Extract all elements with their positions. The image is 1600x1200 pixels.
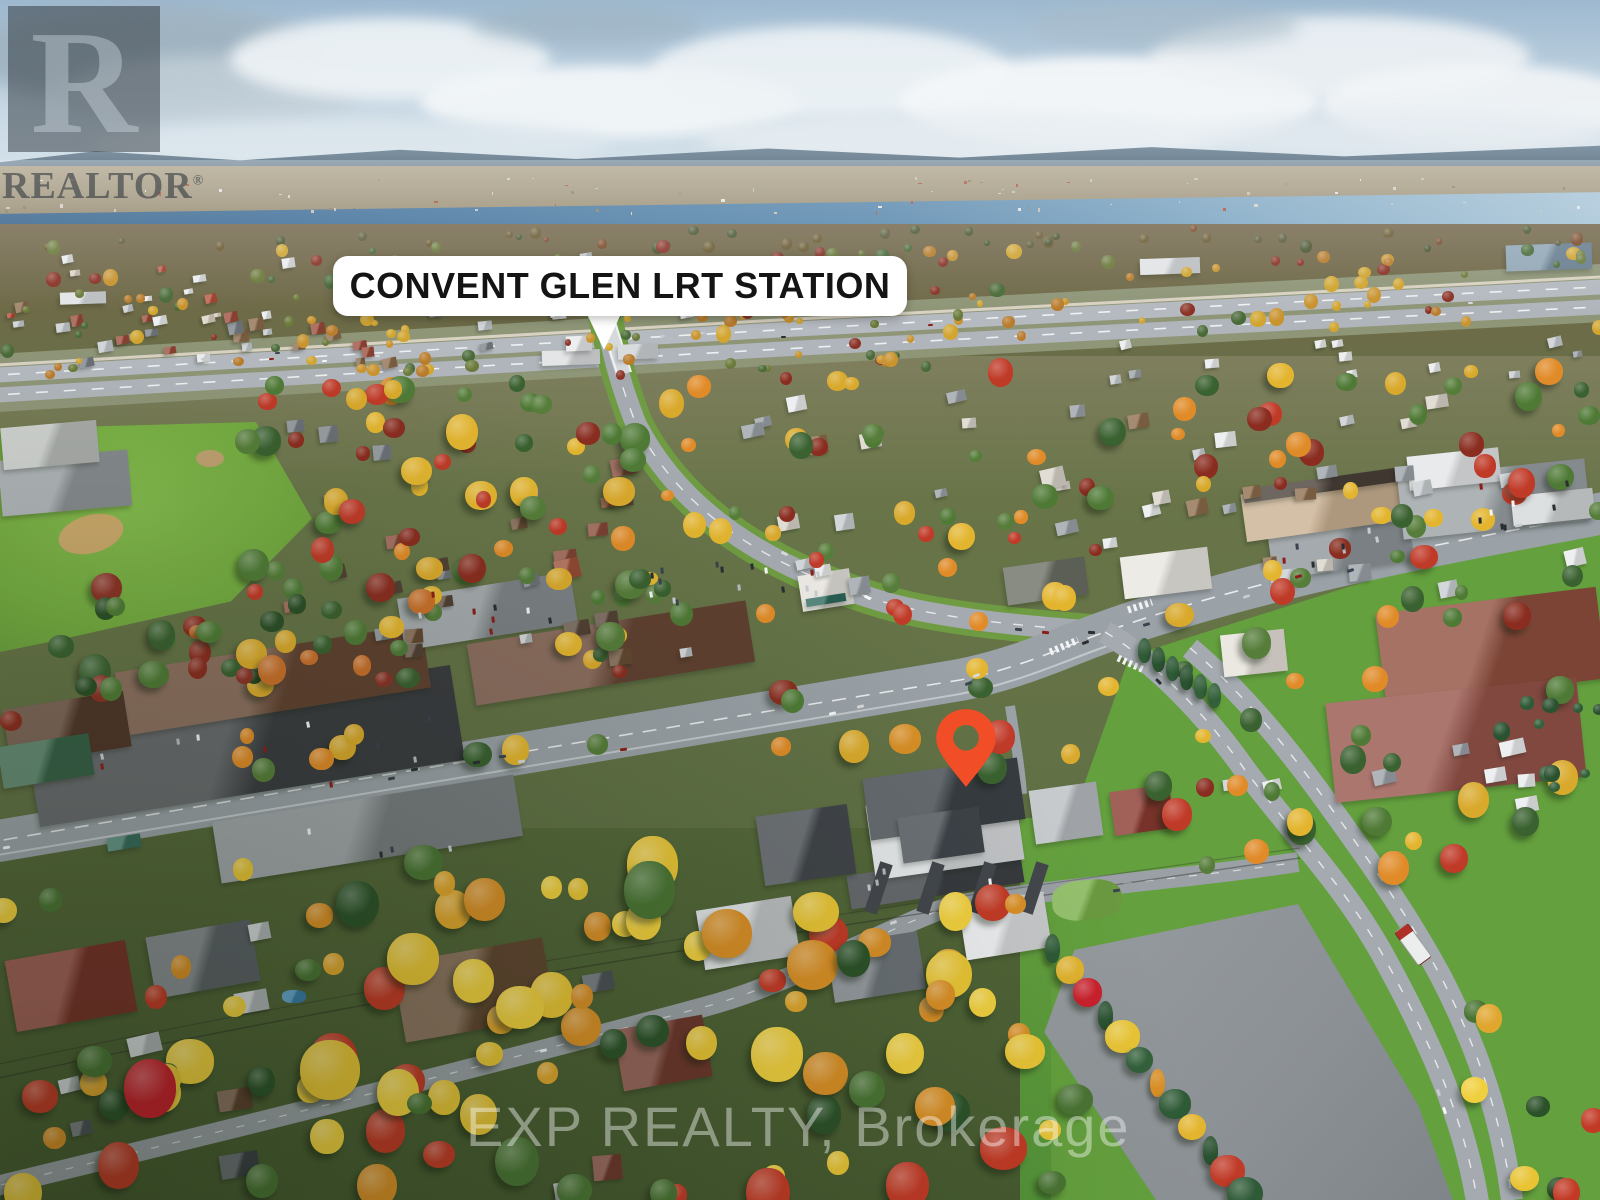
- parked-car: [196, 734, 200, 740]
- parked-car: [764, 568, 768, 574]
- house: [588, 523, 609, 538]
- tree: [1171, 428, 1185, 441]
- house: [478, 320, 493, 331]
- car: [1515, 523, 1522, 527]
- tree: [866, 350, 875, 360]
- distant-building: [353, 208, 356, 210]
- house: [1573, 351, 1583, 358]
- house: [1547, 336, 1563, 349]
- house: [1394, 465, 1415, 482]
- tree: [520, 496, 546, 520]
- tree: [276, 244, 289, 257]
- parked-car: [493, 604, 497, 610]
- tree: [1317, 251, 1329, 263]
- distant-building: [998, 193, 1001, 195]
- distant-building: [1391, 203, 1392, 205]
- tree: [796, 318, 802, 324]
- tree: [1162, 798, 1192, 830]
- tree: [81, 322, 89, 329]
- house: [1425, 393, 1449, 409]
- house: [1316, 465, 1338, 480]
- tree: [145, 985, 167, 1009]
- tree: [921, 361, 931, 372]
- tree: [0, 711, 22, 731]
- house: [1214, 431, 1236, 449]
- realtor-wordmark: REALTOR®: [2, 164, 204, 208]
- distant-building: [219, 189, 221, 192]
- tree: [1424, 509, 1442, 527]
- distant-building: [329, 208, 332, 209]
- tree: [1547, 464, 1574, 491]
- house: [1204, 359, 1218, 369]
- tree: [1371, 507, 1392, 525]
- tree: [1431, 307, 1441, 316]
- tree: [789, 432, 813, 459]
- distant-building: [878, 206, 881, 208]
- house: [1069, 404, 1085, 417]
- tree: [258, 655, 286, 685]
- house: [405, 629, 424, 644]
- distant-building: [532, 178, 533, 180]
- parked-car: [526, 608, 530, 614]
- parked-car: [548, 617, 552, 623]
- tree: [458, 554, 486, 584]
- tree: [1304, 294, 1318, 309]
- tree: [1455, 585, 1469, 601]
- tree: [250, 269, 265, 283]
- tree: [659, 389, 685, 418]
- parked-car: [737, 584, 741, 590]
- tree: [138, 661, 168, 689]
- tree: [969, 612, 987, 632]
- tree: [1367, 287, 1381, 303]
- tree: [1145, 771, 1172, 801]
- house: [1109, 374, 1122, 385]
- house: [158, 265, 167, 273]
- tree: [1231, 311, 1246, 325]
- tree: [541, 876, 562, 899]
- tree: [584, 912, 611, 940]
- parked-car: [867, 884, 871, 890]
- tree: [795, 351, 802, 358]
- distant-building: [596, 209, 600, 211]
- car: [1015, 627, 1022, 631]
- tree: [765, 525, 781, 540]
- tree: [1005, 894, 1026, 914]
- tree: [724, 315, 737, 327]
- car: [473, 760, 480, 764]
- distant-building: [980, 182, 983, 184]
- tree: [100, 677, 123, 701]
- tree: [288, 432, 305, 448]
- tree: [238, 549, 269, 581]
- tree: [1553, 261, 1561, 269]
- tree: [171, 955, 191, 978]
- tree: [603, 477, 635, 506]
- tree: [496, 986, 544, 1029]
- tree: [356, 364, 367, 374]
- house: [1332, 339, 1344, 348]
- parked-car: [650, 573, 654, 579]
- house: [786, 394, 808, 412]
- tree: [989, 283, 1004, 298]
- tree: [1139, 234, 1149, 243]
- tree: [709, 518, 733, 544]
- tree: [309, 748, 333, 770]
- tree: [812, 234, 822, 243]
- tree: [1461, 316, 1472, 327]
- parked-car: [100, 764, 104, 770]
- tree: [366, 1109, 406, 1153]
- tree: [240, 728, 254, 744]
- car: [1442, 1107, 1447, 1115]
- tree: [1442, 291, 1454, 302]
- tree: [1436, 238, 1442, 244]
- tree: [688, 226, 699, 235]
- tree: [681, 438, 696, 452]
- tree: [1526, 1096, 1550, 1117]
- tree: [568, 878, 588, 900]
- tree: [1286, 673, 1303, 689]
- tree: [22, 306, 30, 313]
- tree: [621, 330, 632, 340]
- tree: [284, 316, 294, 327]
- tree: [384, 380, 402, 399]
- parked-car: [1489, 509, 1493, 515]
- tree: [531, 395, 552, 414]
- tree: [620, 448, 646, 472]
- distant-building: [753, 188, 754, 191]
- tree: [403, 367, 413, 377]
- tree: [77, 1046, 112, 1077]
- distant-building: [918, 183, 922, 185]
- tree: [1254, 236, 1262, 243]
- house: [1338, 351, 1351, 361]
- distant-building: [492, 192, 494, 195]
- tree: [1195, 375, 1219, 396]
- car: [890, 920, 898, 925]
- car: [1468, 302, 1473, 304]
- tree: [938, 257, 948, 267]
- tree: [136, 294, 145, 302]
- parked-car: [390, 847, 394, 853]
- tree: [687, 375, 711, 398]
- realtor-logo-letter: R: [31, 9, 138, 157]
- tree: [988, 358, 1013, 387]
- tree: [623, 354, 635, 365]
- tree: [1351, 725, 1372, 746]
- tree: [1358, 267, 1371, 279]
- distant-building: [378, 179, 380, 181]
- tree: [1, 344, 15, 358]
- tree: [1332, 301, 1341, 310]
- parked-car: [306, 721, 310, 728]
- tree: [1173, 397, 1196, 420]
- tree: [502, 735, 529, 765]
- parked-car: [648, 592, 652, 598]
- tree: [785, 991, 807, 1012]
- tree: [1329, 322, 1339, 331]
- tree: [947, 250, 958, 262]
- tree: [387, 933, 439, 985]
- tree: [1002, 316, 1015, 328]
- tree: [177, 298, 188, 310]
- tree: [434, 454, 451, 470]
- tree: [300, 1040, 360, 1100]
- distant-building: [1016, 184, 1018, 187]
- car: [928, 324, 933, 327]
- distant-building: [1018, 208, 1022, 211]
- tree: [1247, 407, 1271, 431]
- distant-building: [1335, 192, 1338, 195]
- distant-building: [968, 180, 971, 182]
- tree: [1290, 568, 1311, 588]
- tree: [893, 604, 913, 626]
- tree: [1098, 677, 1119, 696]
- parked-car: [660, 568, 664, 574]
- distant-building: [1187, 183, 1188, 184]
- tree: [1576, 254, 1587, 265]
- tree: [1267, 363, 1293, 388]
- car: [411, 767, 418, 771]
- conifer-tree: [1138, 638, 1151, 663]
- house: [56, 322, 71, 333]
- tree: [124, 1059, 176, 1118]
- tree: [1555, 240, 1561, 246]
- tree: [46, 272, 61, 287]
- tree: [1178, 1114, 1206, 1141]
- tree: [322, 339, 329, 346]
- distant-building: [679, 193, 681, 195]
- tree: [1026, 241, 1034, 249]
- tree: [557, 1174, 591, 1200]
- car: [269, 358, 274, 361]
- tree: [1061, 744, 1080, 765]
- tree: [1409, 404, 1428, 425]
- tree: [587, 734, 609, 754]
- tree: [661, 490, 674, 501]
- distant-building: [915, 177, 916, 180]
- tree: [75, 289, 84, 298]
- tree: [419, 352, 431, 365]
- tree: [43, 1127, 66, 1149]
- tree: [1464, 365, 1478, 377]
- tree: [1250, 311, 1265, 327]
- parked-car: [1375, 537, 1379, 544]
- parked-car: [1478, 517, 1481, 523]
- car: [828, 711, 836, 716]
- tree: [771, 737, 791, 755]
- tree: [965, 227, 973, 236]
- tree: [940, 508, 957, 525]
- tree: [310, 1119, 343, 1155]
- tree: [561, 1007, 602, 1046]
- tree: [837, 940, 870, 977]
- tree: [1571, 232, 1583, 245]
- house: [1243, 484, 1263, 499]
- conifer-tree: [1208, 683, 1221, 708]
- tree: [1300, 240, 1312, 253]
- tree: [654, 580, 670, 597]
- tree: [379, 616, 403, 638]
- tree: [1297, 259, 1304, 267]
- tree: [39, 888, 61, 912]
- tree: [1005, 1034, 1046, 1069]
- parked-car: [1511, 500, 1515, 506]
- tree: [148, 306, 157, 314]
- tree: [232, 746, 253, 768]
- parked-car: [413, 757, 417, 763]
- tree: [1474, 454, 1496, 478]
- tree: [1264, 782, 1280, 801]
- tree: [1324, 276, 1339, 293]
- distant-building: [1090, 179, 1092, 182]
- tree: [344, 724, 365, 745]
- tree: [756, 604, 775, 624]
- tree: [882, 573, 900, 593]
- house: [318, 425, 339, 443]
- house: [202, 314, 216, 325]
- tree: [519, 567, 535, 584]
- house: [934, 487, 948, 498]
- tree: [1385, 372, 1407, 395]
- tree: [1032, 484, 1058, 509]
- house: [1119, 339, 1132, 351]
- parked-car: [875, 880, 879, 886]
- distant-building: [1463, 202, 1466, 203]
- parked-car: [988, 878, 992, 884]
- tree: [1197, 325, 1208, 337]
- tree: [428, 1080, 460, 1115]
- parked-car: [1479, 483, 1483, 489]
- conifer-tree: [1180, 665, 1193, 690]
- tree: [759, 969, 785, 992]
- tree: [686, 1026, 717, 1060]
- distant-building: [1452, 186, 1455, 188]
- tree: [576, 422, 600, 444]
- parked-car: [379, 851, 383, 857]
- tree: [246, 1164, 278, 1198]
- tree: [1542, 698, 1559, 714]
- tree: [98, 1142, 139, 1189]
- house: [1411, 479, 1432, 497]
- tree: [54, 363, 62, 371]
- tree: [1520, 696, 1534, 710]
- tree: [148, 620, 175, 650]
- tree: [844, 377, 859, 390]
- tree: [300, 650, 318, 665]
- tree: [211, 334, 217, 340]
- tree: [727, 229, 737, 238]
- tree: [476, 1042, 503, 1066]
- tree: [1126, 273, 1134, 280]
- house: [1142, 502, 1162, 518]
- tree: [596, 622, 625, 651]
- parked-car: [715, 562, 719, 568]
- house: [1484, 766, 1507, 783]
- car: [1113, 888, 1120, 892]
- tree: [918, 526, 934, 542]
- distant-building: [1067, 182, 1070, 183]
- tree: [650, 1179, 678, 1200]
- tree: [1354, 276, 1369, 289]
- tree: [423, 1141, 455, 1169]
- parked-car: [447, 845, 451, 852]
- parked-car: [1295, 543, 1299, 549]
- location-pin-shape: [936, 709, 995, 787]
- house: [164, 346, 177, 355]
- house: [740, 422, 765, 440]
- tree: [45, 370, 55, 379]
- tree: [344, 620, 367, 645]
- tree: [703, 241, 714, 253]
- tree: [75, 677, 97, 696]
- house: [57, 1076, 81, 1095]
- tree: [571, 984, 593, 1009]
- house: [372, 444, 391, 460]
- distant-building: [774, 212, 776, 214]
- parked-car: [810, 570, 814, 576]
- car: [322, 360, 327, 363]
- realtor-logo-box: R: [8, 6, 160, 152]
- car: [201, 358, 206, 360]
- tree: [880, 228, 890, 239]
- tree: [494, 540, 514, 557]
- tree: [793, 892, 839, 932]
- tree: [390, 640, 408, 656]
- distant-building: [1110, 204, 1113, 205]
- parked-car: [1367, 528, 1371, 534]
- tree: [47, 240, 60, 255]
- tree: [611, 526, 635, 550]
- tree: [1212, 264, 1220, 272]
- tree: [252, 758, 275, 782]
- tree: [1523, 225, 1531, 234]
- conifer-tree: [1045, 934, 1060, 963]
- tree: [76, 358, 82, 363]
- tree: [583, 465, 600, 484]
- tree: [1271, 256, 1281, 266]
- tree: [233, 858, 253, 881]
- tree: [307, 316, 316, 324]
- house: [1428, 362, 1441, 373]
- tree: [446, 414, 478, 450]
- parked-car: [1312, 561, 1316, 567]
- tree: [1573, 703, 1583, 713]
- tree: [223, 996, 246, 1018]
- house: [204, 293, 217, 304]
- distant-building: [1012, 191, 1015, 193]
- location-pin-icon: [933, 706, 999, 795]
- tree: [1574, 382, 1590, 398]
- tree: [997, 513, 1014, 531]
- tree: [616, 370, 626, 380]
- tree: [930, 286, 941, 295]
- distant-building: [911, 201, 913, 204]
- house: [192, 274, 206, 283]
- distant-building: [1360, 179, 1362, 181]
- tree: [106, 597, 125, 617]
- tree: [1512, 807, 1539, 836]
- tree: [1006, 244, 1022, 259]
- tree: [1196, 476, 1211, 493]
- tree: [1242, 627, 1270, 659]
- tree: [1269, 450, 1286, 468]
- tree: [75, 331, 81, 338]
- house: [848, 576, 871, 596]
- distant-building: [1038, 208, 1039, 211]
- distant-building: [1254, 204, 1258, 207]
